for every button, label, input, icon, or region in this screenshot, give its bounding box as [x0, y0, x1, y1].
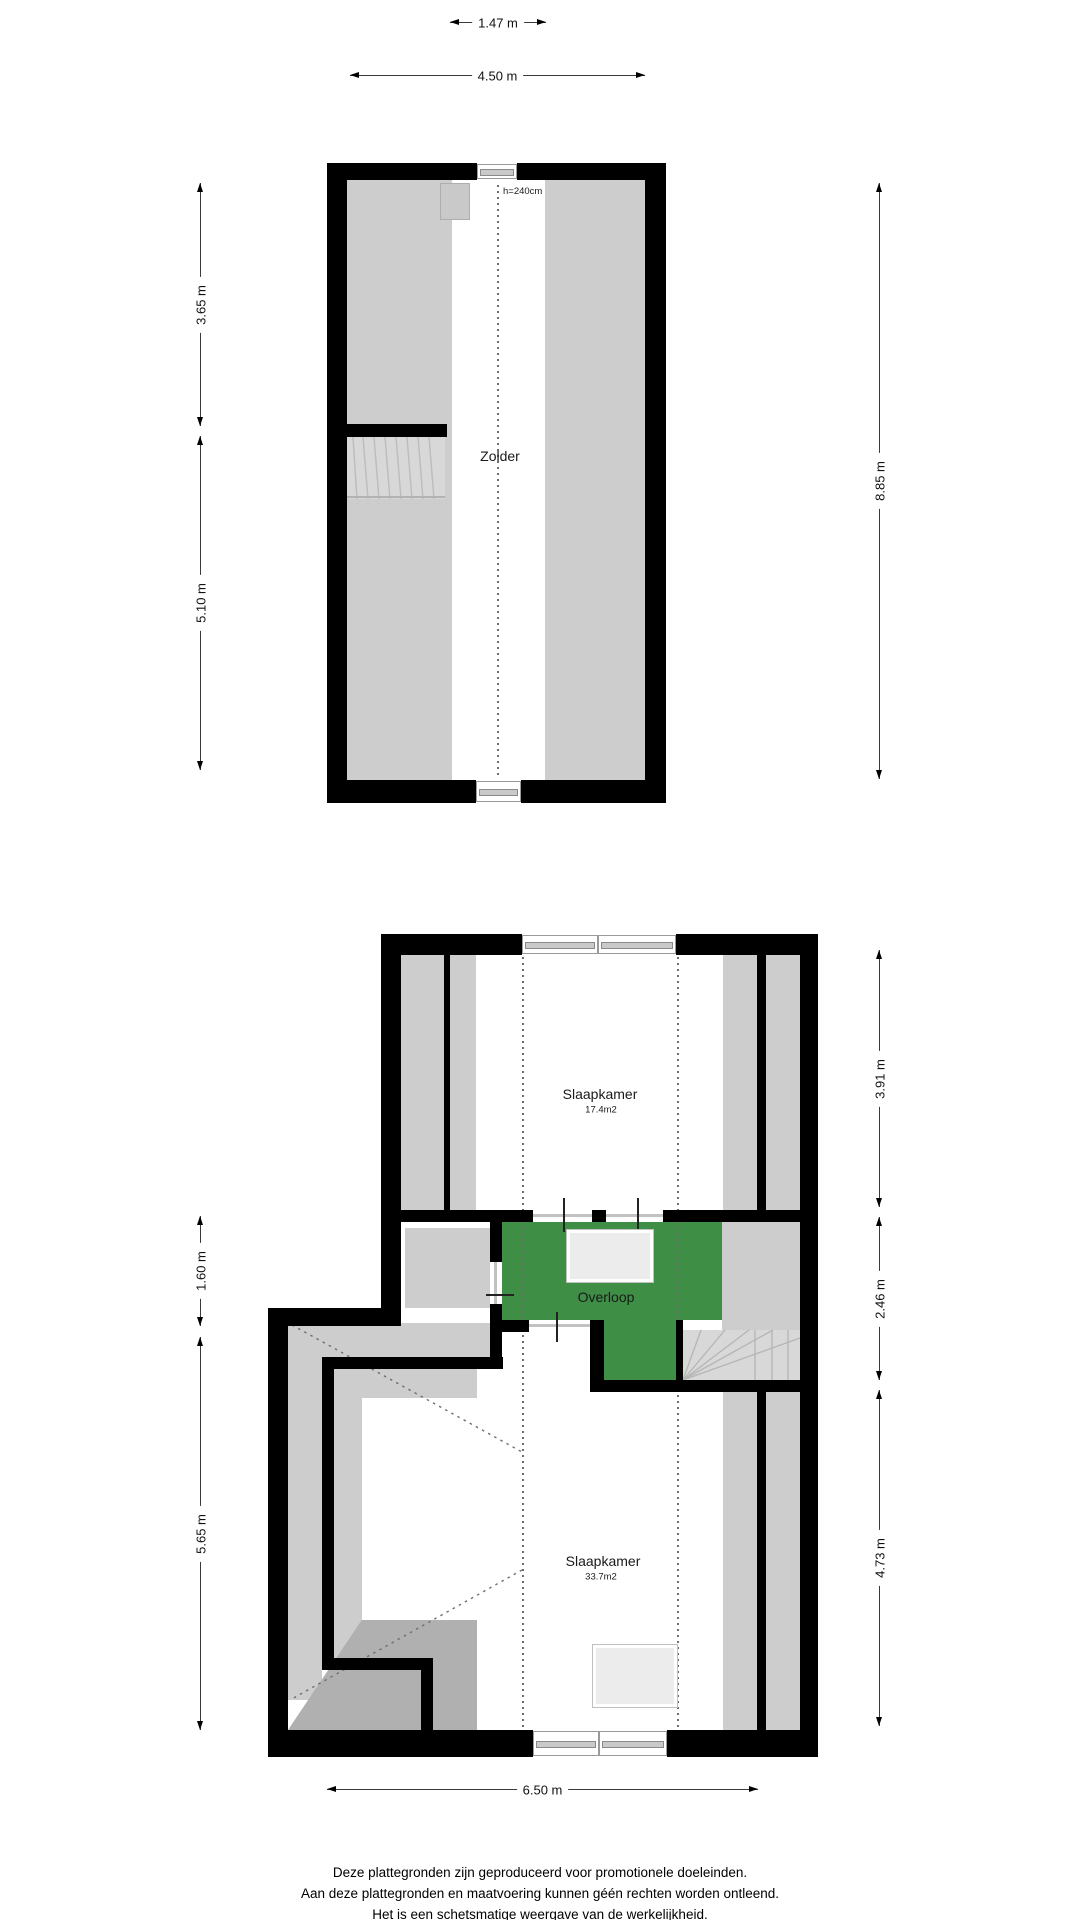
floor-wall-bottom-left: [268, 1730, 533, 1757]
dim-floor-right-bottom: 4.73 m: [879, 1390, 880, 1726]
footer-disclaimer: Deze plattegronden zijn geproduceerd voo…: [0, 1862, 1080, 1920]
footer-line-3: Het is een schetsmatige weergave van de …: [0, 1904, 1080, 1920]
floor-wall-top-right: [676, 934, 818, 955]
floor-roof-hip-dotted-lines: [0, 0, 1080, 1920]
wall-storage-top: [322, 1357, 503, 1369]
dim-floor-right-top: 3.91 m: [879, 950, 880, 1207]
footer-line-1: Deze plattegronden zijn geproduceerd voo…: [0, 1862, 1080, 1883]
opening-tick-2: [637, 1198, 639, 1232]
floor-window-bottom-right-pane: [599, 1731, 667, 1756]
dim-floor-left-lower: 5.65 m: [200, 1337, 201, 1730]
b2-area-label: 33.7m2: [585, 1572, 617, 1583]
wall-storage-left: [322, 1357, 334, 1670]
opening-tick-1: [563, 1198, 565, 1232]
floor-wall-bottom-right: [667, 1730, 818, 1757]
wall-storage-stub: [421, 1658, 433, 1730]
landing-b2-door-opening: [529, 1320, 590, 1332]
footer-line-2: Aan deze plattegronden en maatvoering ku…: [0, 1883, 1080, 1904]
wall-landing-door-left: [502, 1320, 529, 1332]
floor-window-top-right-pane: [598, 935, 676, 954]
wall-b1-landing-mid: [592, 1210, 606, 1222]
floor-wall-protrusion-left: [268, 1308, 288, 1757]
wall-closet-right-lower: [490, 1304, 502, 1365]
wall-b1-landing-right: [663, 1210, 818, 1222]
knee-wall-b1-right: [757, 955, 766, 1210]
b1-area-label: 17.4m2: [585, 1105, 617, 1116]
opening-tick-3: [556, 1312, 558, 1342]
dim-floor-left-upper: 1.60 m: [200, 1216, 201, 1326]
opening-tick-4: [486, 1294, 514, 1296]
knee-wall-b2-right: [757, 1392, 766, 1730]
dim-floor-bottom: 6.50 m: [327, 1789, 758, 1790]
wall-under-stairs: [594, 1380, 818, 1392]
wall-storage-bottom: [322, 1658, 433, 1670]
wall-b1-landing-left: [381, 1210, 533, 1222]
landing-room-label: Overloop: [578, 1289, 635, 1305]
b1-room-label: Slaapkamer: [563, 1086, 638, 1102]
b2-room-label: Slaapkamer: [566, 1553, 641, 1569]
landing-skylight: [567, 1230, 653, 1282]
floor-wall-left-upper: [381, 934, 401, 1326]
floor-wall-top-left: [381, 934, 522, 955]
floorplan-page: Zolder h=240cm 1.47 m 4.50 m 3.65 m 5.10…: [0, 0, 1080, 1920]
floor-wall-right: [800, 934, 818, 1757]
floor-window-bottom-left-pane: [533, 1731, 599, 1756]
knee-wall-b1-left: [444, 955, 450, 1210]
floor-window-top-left-pane: [522, 935, 598, 954]
dim-floor-right-middle: 2.46 m: [879, 1217, 880, 1380]
b2-skylight: [593, 1645, 677, 1707]
closet-door-opening: [490, 1262, 502, 1304]
wall-closet-right-upper: [490, 1222, 502, 1262]
opening-b1-landing-2: [606, 1210, 663, 1222]
